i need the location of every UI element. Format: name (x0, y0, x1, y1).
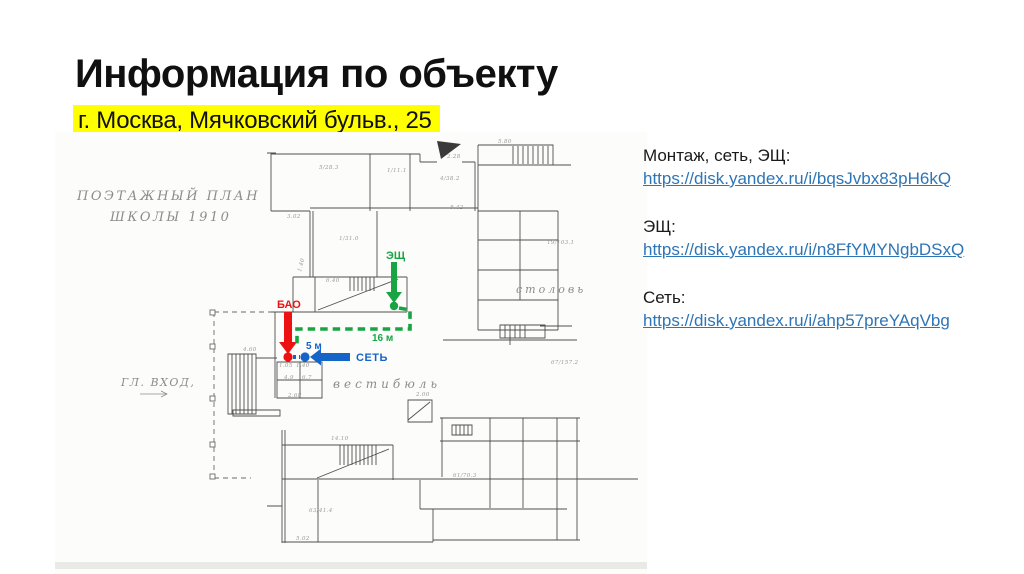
slide-title: Информация по объекту (75, 52, 558, 97)
plan-label: ШКОЛЫ 1910 (109, 210, 231, 225)
scan-paper-edge (55, 562, 647, 569)
link-label-montage: Монтаж, сеть, ЭЩ: (643, 144, 993, 167)
link-label-shield: ЭЩ: (643, 215, 993, 238)
plan-dimension: 1.05 (279, 363, 293, 369)
plan-dimension: 63/41.4 (309, 508, 333, 514)
plan-dimension: 1/31.0 (339, 236, 359, 242)
plan-dimension: 1.40 (297, 258, 306, 273)
plan-dimension: 5.80 (498, 139, 512, 145)
link-group-network: Сеть: https://disk.yandex.ru/i/ahp57preY… (643, 286, 993, 332)
plan-label: ПОЭТАЖНЫЙ ПЛАН (76, 186, 260, 204)
floor-plan-scan: ПОЭТАЖНЫЙ ПЛАНШКОЛЫ 1910ГЛ. ВХОД,вестибю… (55, 132, 647, 574)
plan-dimension: 19/103.1 (547, 240, 574, 246)
plan-dimension: 5.02 (296, 536, 310, 542)
annotation-shield: ЭЩ 16 м (297, 250, 410, 344)
plan-dimension: 1.40 (296, 363, 310, 369)
plan-dimension: 2.68 (287, 393, 302, 399)
bao-point (283, 352, 292, 361)
plan-dimension: 6.40 (326, 278, 340, 284)
network-point (300, 352, 309, 361)
bao-arrow-icon (279, 312, 297, 354)
plan-dimension: 4.60 (242, 347, 257, 353)
plan-dimension: 8.42 (450, 205, 464, 211)
link-montage[interactable]: https://disk.yandex.ru/i/bqsJvbx83pH6kQ (643, 167, 951, 190)
plan-dimension: 14.10 (331, 436, 349, 442)
plan-label: вестибюль (333, 377, 441, 391)
plan-label: ГЛ. ВХОД, (120, 376, 195, 389)
link-shield[interactable]: https://disk.yandex.ru/i/n8FfYMYNgbDSxQ (643, 238, 964, 261)
plan-dimension: 1/11.1 (387, 168, 407, 174)
plan-dimension: 4.9 (283, 375, 294, 381)
bao-label: БАО (277, 299, 301, 311)
blueprint-porch-dashed (210, 310, 271, 479)
plan-dimension: 2.28 (446, 154, 461, 160)
plan-dimension: 3.02 (287, 214, 301, 220)
link-network[interactable]: https://disk.yandex.ru/i/ahp57preYAqVbg (643, 309, 950, 332)
plan-dimension: 67/157.2 (551, 360, 579, 366)
links-panel: Монтаж, сеть, ЭЩ: https://disk.yandex.ru… (643, 144, 993, 357)
plan-dimension: 61/70.3 (453, 473, 477, 479)
plan-label: столовь (516, 283, 586, 296)
shield-point (390, 302, 398, 310)
link-group-montage: Монтаж, сеть, ЭЩ: https://disk.yandex.ru… (643, 144, 993, 190)
network-label: СЕТЬ (356, 352, 388, 364)
entrance-arrow-icon (140, 391, 167, 397)
shield-distance-label: 16 м (372, 333, 393, 344)
link-label-network: Сеть: (643, 286, 993, 309)
link-group-shield: ЭЩ: https://disk.yandex.ru/i/n8FfYMYNgbD… (643, 215, 993, 261)
plan-dimension: 5/28.3 (319, 165, 339, 171)
shield-label: ЭЩ (386, 250, 406, 262)
plan-dimension: 2.00 (415, 392, 430, 398)
network-distance-label: 5 м (306, 341, 322, 352)
plan-dimension: 6.7 (302, 375, 312, 381)
plan-dimension: 4/38.2 (439, 176, 460, 182)
floor-plan-svg: ПОЭТАЖНЫЙ ПЛАНШКОЛЫ 1910ГЛ. ВХОД,вестибю… (55, 132, 647, 574)
